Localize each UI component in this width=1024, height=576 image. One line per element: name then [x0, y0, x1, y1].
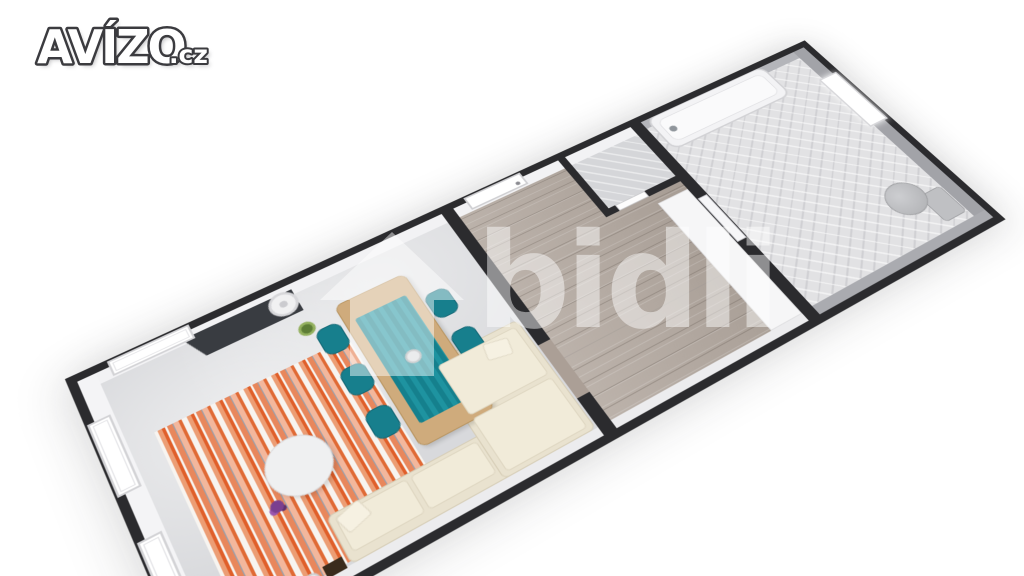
brand-logo: AVÍZO .cz AVÍZO .cz: [16, 6, 296, 90]
door-handle: [515, 181, 521, 186]
page: AVÍZO .cz AVÍZO .cz: [0, 0, 1024, 576]
brand-tld: .cz: [169, 40, 208, 69]
brand-name: AVÍZO: [37, 20, 185, 74]
floor-plan: [65, 40, 1006, 576]
